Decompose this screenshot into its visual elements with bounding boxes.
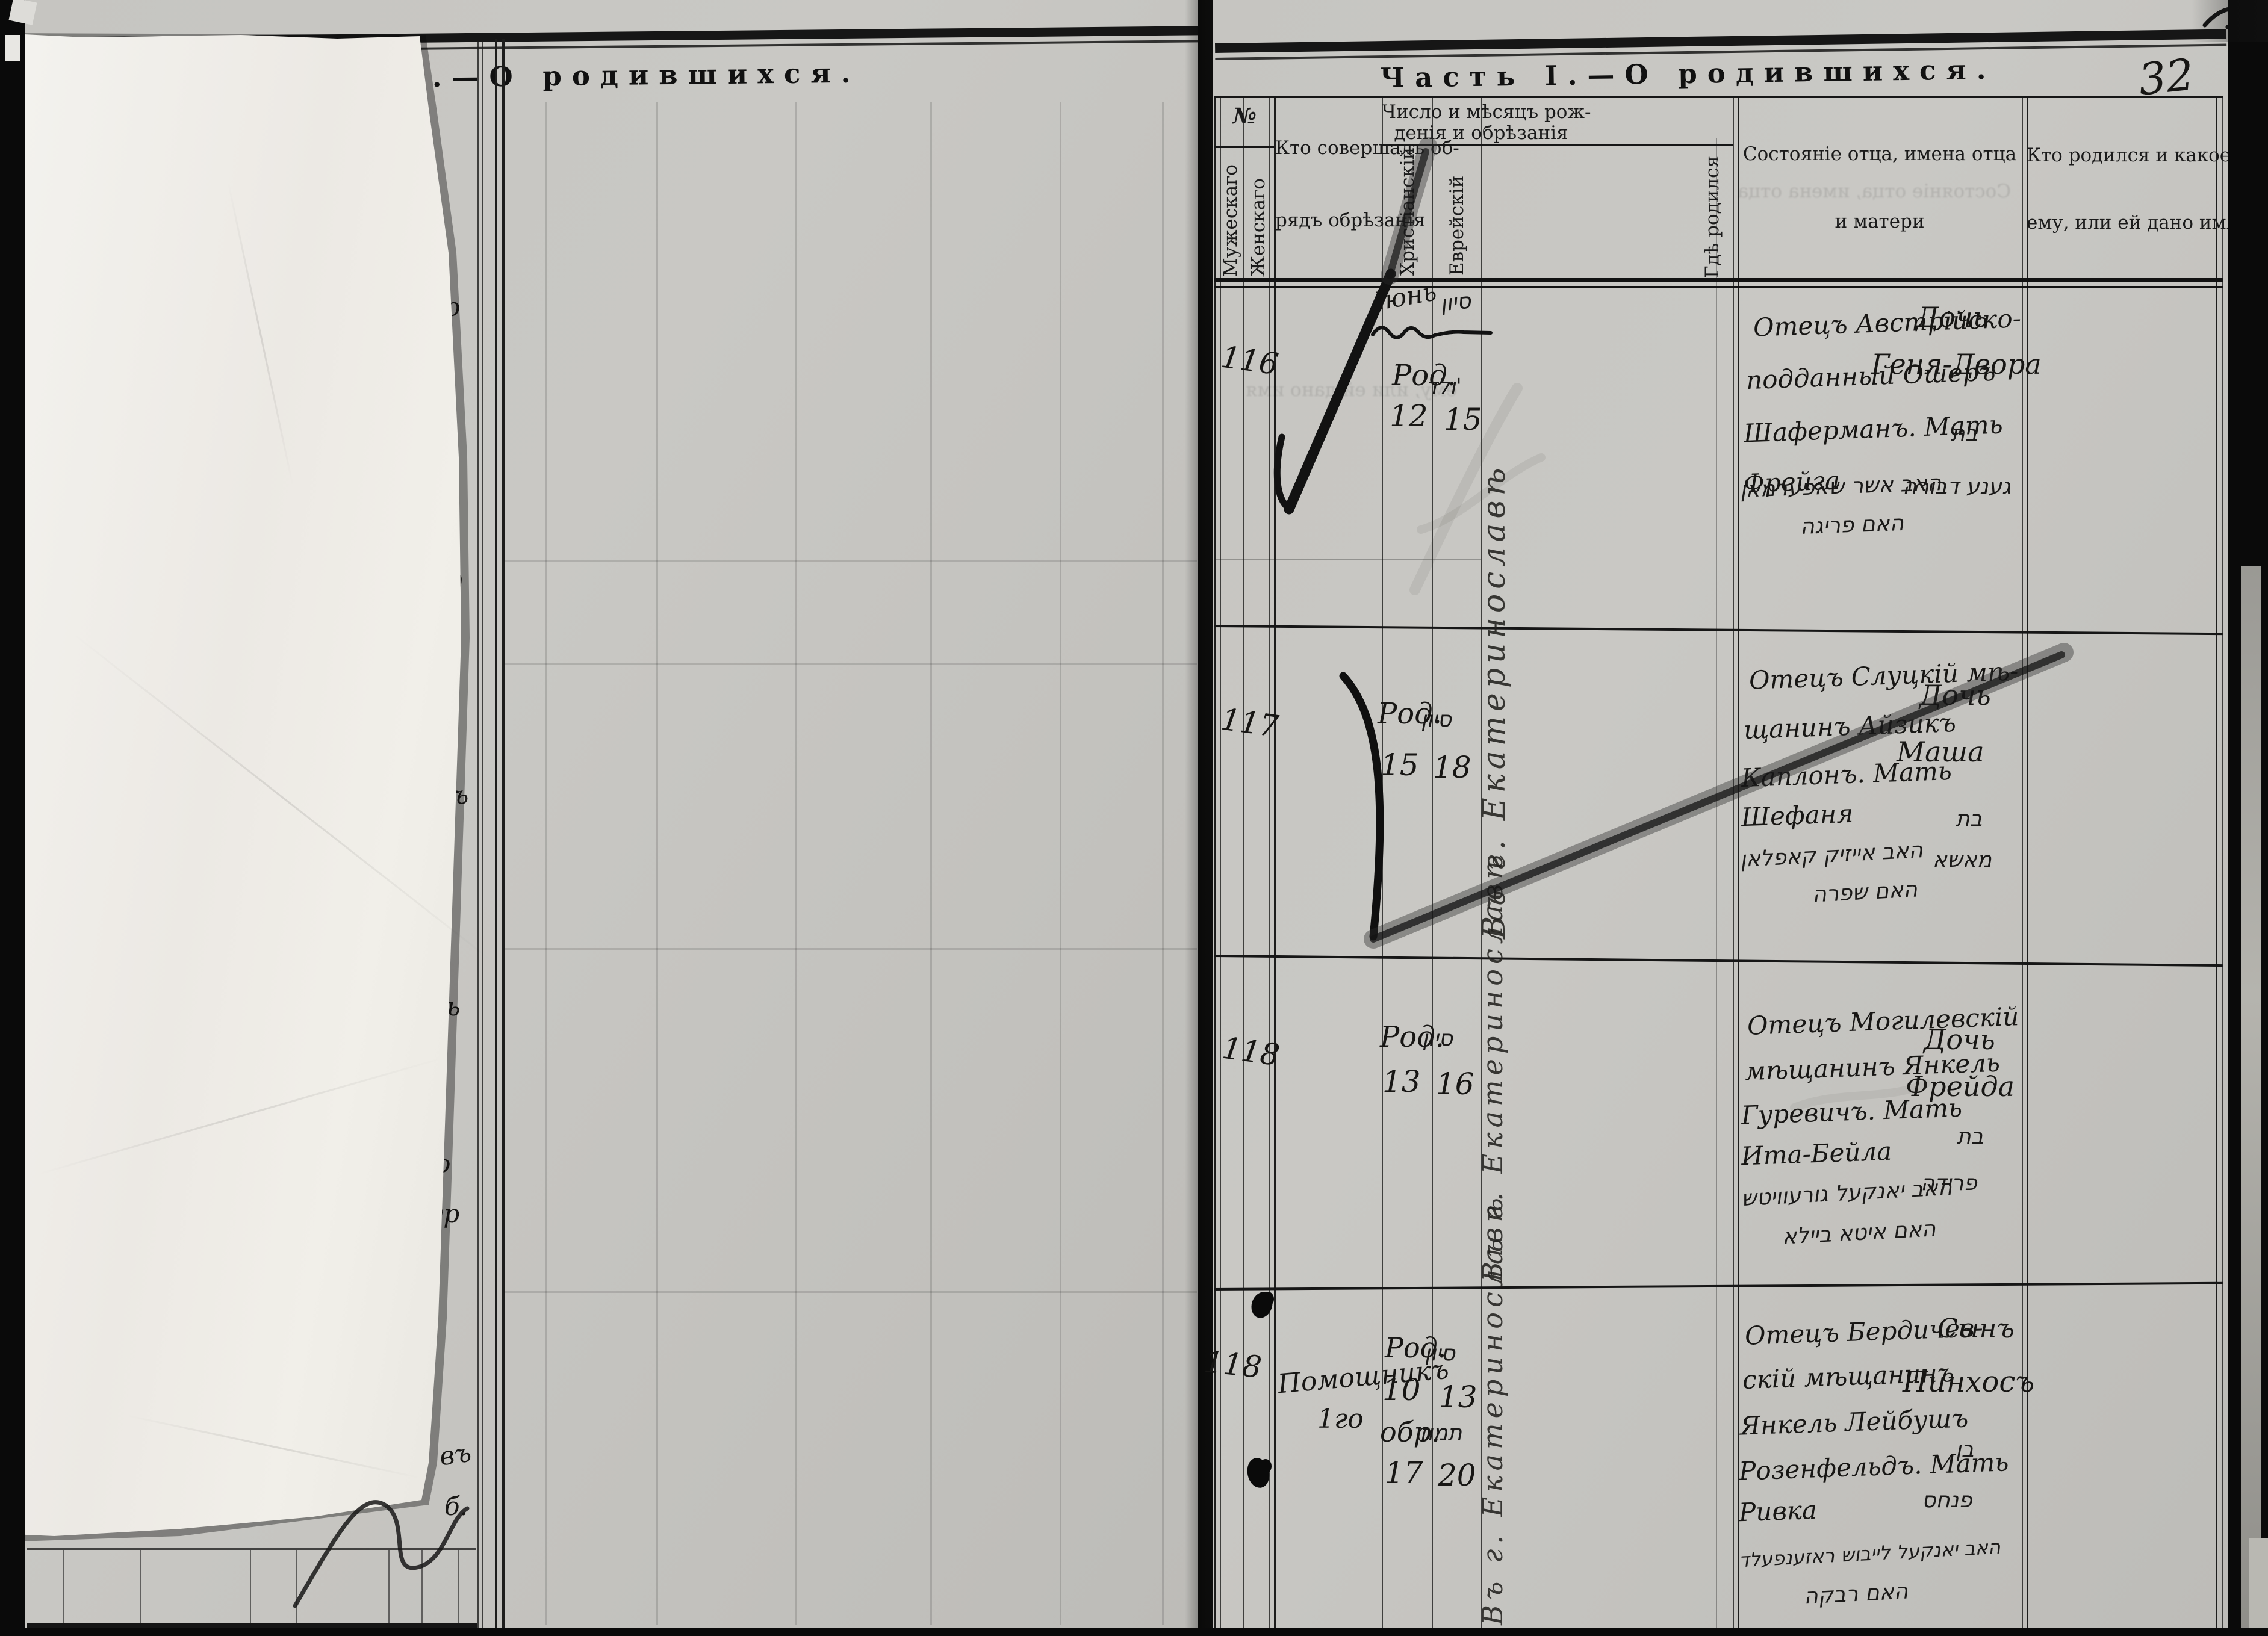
entry-date-hebrew: תמוז	[1420, 1421, 1462, 1445]
entry-month-he: סיון	[1439, 288, 1472, 316]
entry-day-ru: 12	[1390, 398, 1428, 433]
header-bottom-rule	[1214, 278, 2223, 288]
entry-child-hebrew: בת	[1957, 1124, 1983, 1149]
entry-child-hebrew: גענע דבורה	[1903, 474, 2011, 499]
entry-child-line: Сынъ	[1937, 1313, 2015, 1344]
entry-date-hebrew: 20	[1438, 1458, 1476, 1493]
col-header-mohel-2: рядъ обрѣзанія	[1275, 209, 1381, 231]
entry-day-ru: 13	[1382, 1064, 1421, 1099]
film-edge-left	[0, 0, 25, 1636]
col-header-christian: Христіанскій	[1397, 155, 1418, 276]
entry-word-he: ולד'	[1426, 374, 1462, 399]
entry-date-line: 10	[1382, 1372, 1421, 1407]
entry-date-line: 17	[1385, 1455, 1423, 1490]
col-header-date-2: денія и обрѣзанія	[1382, 122, 1580, 144]
entry-child-hebrew: בת	[1951, 421, 1977, 446]
entry-date-hebrew: 13	[1439, 1380, 1477, 1414]
col-header-mohel-1: Кто совершалъ об-	[1275, 137, 1381, 159]
col-header-parents-2: и матери	[1738, 211, 2022, 232]
entry-child-line: Фрейда	[1906, 1070, 2015, 1103]
handwriting-fragment: въ	[438, 1438, 473, 1472]
page-edges-stripe	[2241, 566, 2261, 1636]
col-header-child-2: ему, или ей дано имя	[2027, 212, 2216, 234]
entry-parents-hebrew: האם פריגה	[1800, 511, 1904, 539]
entry-mohel-line: 1го	[1317, 1404, 1364, 1434]
book-scan: Часть I.—О родившихся. схо д изъ ль го у…	[0, 0, 2268, 1636]
entry-day-ru: 15	[1381, 748, 1419, 782]
col-header-parents-1: Состояніе отца, имена отца	[1738, 143, 2022, 165]
entry-child-line: Геня-Двора	[1871, 348, 2042, 380]
entry-birthplace-vertical: Въ г. Екатеринославѣ	[1476, 289, 1512, 939]
entry-child-hebrew: פנחס	[1922, 1488, 1972, 1513]
entry-day-he: 16	[1436, 1067, 1474, 1102]
entry-number: 118	[1202, 1344, 1263, 1385]
handwriting-fragment: б.	[444, 1492, 468, 1521]
entry-child-hebrew: מאשא	[1933, 847, 1992, 872]
entry-child-line: Маша	[1897, 736, 1984, 768]
entry-parents-line: Ита-Бейла	[1741, 1136, 1892, 1171]
col-header-female: Женскаго	[1247, 163, 1269, 277]
col-header-birthplace: Гдѣ родился	[1701, 158, 1723, 278]
bottom-edge	[0, 1628, 2268, 1636]
entry-word-he: סיון	[1422, 1026, 1453, 1051]
col-header-no: №	[1222, 104, 1267, 129]
entry-child-hebrew: פרידה	[1921, 1171, 1977, 1195]
entry-word-he: סיון	[1421, 707, 1452, 732]
entry-birthplace-vertical: Въ г. Екатеринославѣ	[1476, 1300, 1509, 1625]
top-right-dark-corner	[2192, 0, 2268, 42]
entry-day-he: 18	[1433, 750, 1471, 785]
col-header-date-1: Число и мѣсяцъ рож-	[1382, 101, 1580, 123]
entry-child-line: Пинхосъ	[1903, 1365, 2034, 1399]
col-header-jewish: Еврейскій	[1446, 161, 1468, 276]
entry-date-hebrew: סיון	[1424, 1341, 1455, 1366]
entry-child-hebrew: בת	[1956, 807, 1982, 831]
entry-child-line: Дочь	[1919, 679, 1991, 711]
entry-parents-line: Шефаня	[1741, 799, 1854, 832]
entry-parents-line: Ривка	[1738, 1495, 1818, 1528]
bleedthrough-ghost: Состояніе отца, имена отца	[1746, 181, 2011, 202]
entry-child-line: Дочь	[1916, 301, 1988, 333]
col-header-male: Мужескаго	[1220, 163, 1241, 277]
entry-child-hebrew: בן	[1956, 1437, 1974, 1462]
entry-child-line: Дочь	[1924, 1023, 1995, 1056]
col-header-child-1: Кто родился и какое	[2027, 144, 2216, 166]
